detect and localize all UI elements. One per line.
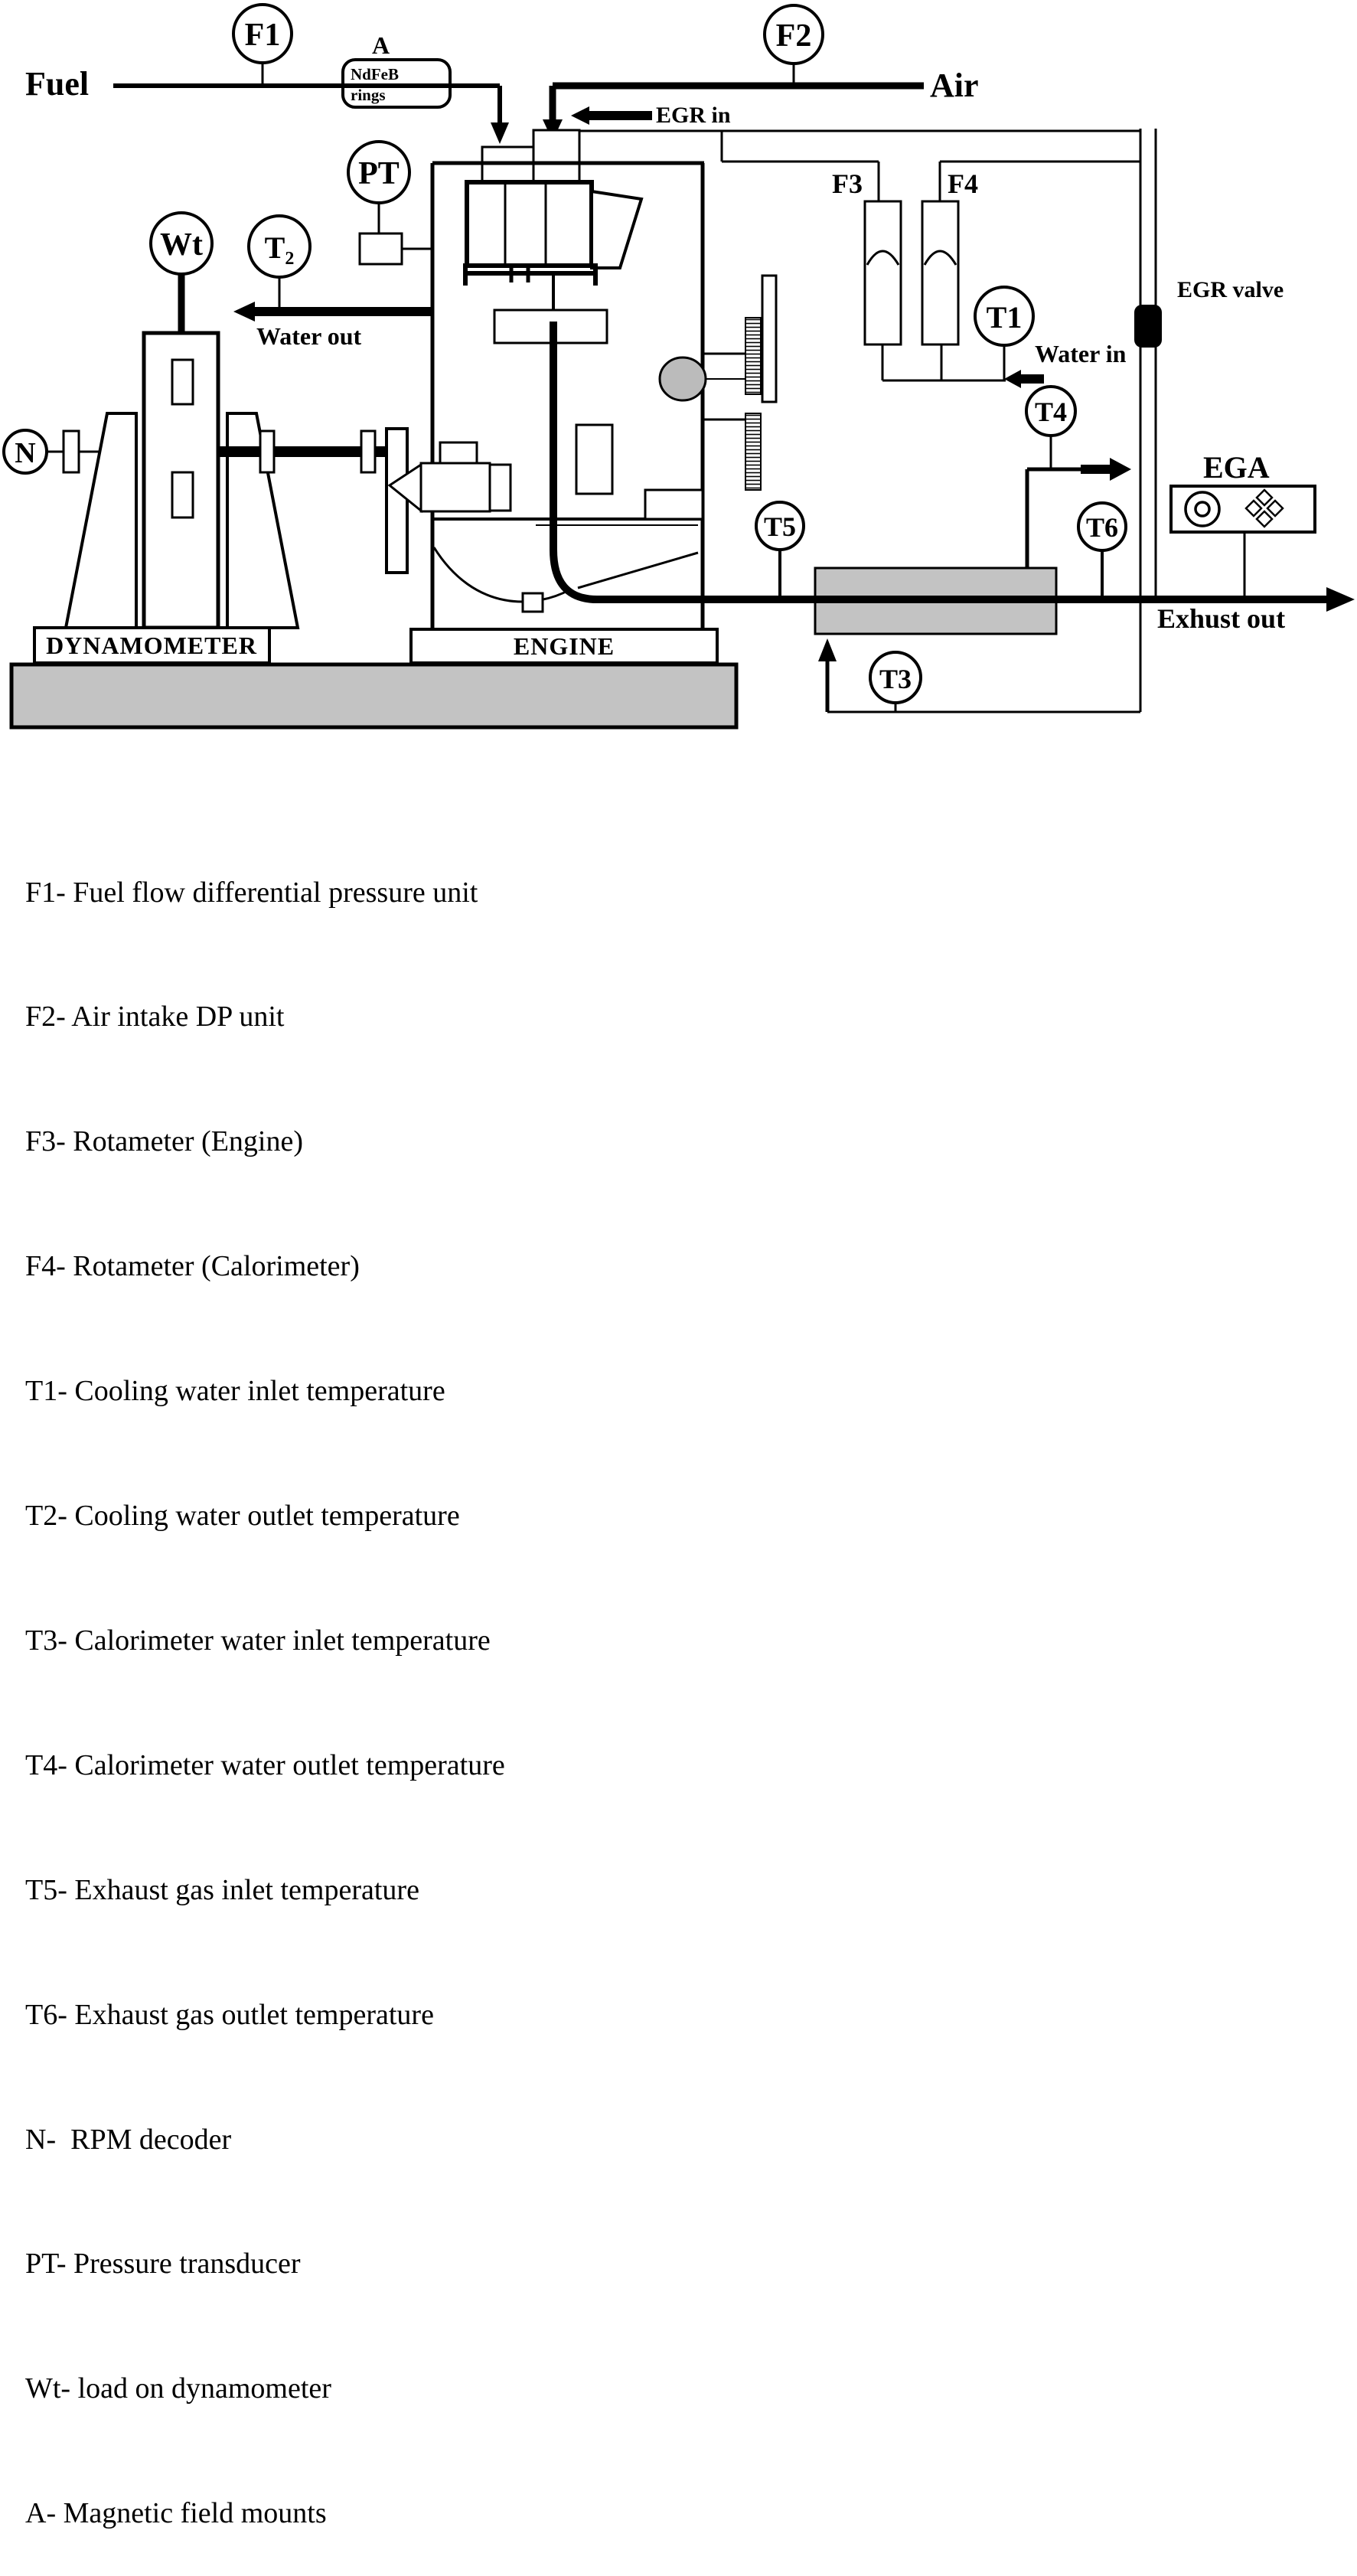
legend-item: F2- Air intake DP unit xyxy=(25,996,505,1037)
coupling-left xyxy=(260,431,274,472)
sensor-wt-label: Wt xyxy=(160,227,203,263)
calorimeter-in-arrow-icon xyxy=(818,638,837,661)
legend-item: F3- Rotameter (Engine) xyxy=(25,1121,505,1162)
intake-manifold xyxy=(467,182,641,268)
sensor-t6-label: T6 xyxy=(1086,512,1118,543)
egr-valve-label: EGR valve xyxy=(1177,277,1284,302)
a-mount-label: A xyxy=(372,31,390,59)
engine-port-circle xyxy=(660,358,706,400)
fuel-label: Fuel xyxy=(25,65,89,103)
sensor-t3-label: T3 xyxy=(879,664,912,694)
legend-item: T6- Exhaust gas outlet temperature xyxy=(25,1994,505,2036)
exhaust-arrow-icon xyxy=(1326,587,1355,612)
legend-item: T5- Exhaust gas inlet temperature xyxy=(25,1869,505,1911)
experimental-setup-figure: NdFeB rings A xyxy=(0,0,1357,1371)
rotameter-f3-tube xyxy=(865,201,901,344)
sensor-f1-label: F1 xyxy=(245,18,281,53)
ega-label: EGA xyxy=(1203,450,1270,485)
f4-label: F4 xyxy=(948,168,978,199)
sensor-t1-label: T1 xyxy=(987,300,1023,335)
legend-item: N- RPM decoder xyxy=(25,2119,505,2160)
schematic-diagram: NdFeB rings A xyxy=(0,0,1357,773)
foundation-slab xyxy=(11,664,736,727)
water-in-arrow-icon xyxy=(1004,370,1021,388)
water-out-arrow-icon xyxy=(233,302,255,322)
calorimeter-outlet-line xyxy=(1027,436,1131,568)
legend-item: T4- Calorimeter water outlet temperature xyxy=(25,1745,505,1786)
legend-item: T2- Cooling water outlet temperature xyxy=(25,1495,505,1536)
coupling-right xyxy=(361,431,375,472)
sensor-n-label: N xyxy=(15,437,35,469)
sensor-t5-label: T5 xyxy=(764,511,796,542)
pressure-transducer xyxy=(360,203,432,264)
egr-in-arrow-icon xyxy=(571,106,589,125)
ndfeb-label: NdFeB xyxy=(351,65,399,83)
dynamometer-label: DYNAMOMETER xyxy=(46,632,257,659)
legend-item: T3- Calorimeter water inlet temperature xyxy=(25,1620,505,1661)
legend-item: T1- Cooling water inlet temperature xyxy=(25,1370,505,1412)
legend-item: Wt- load on dynamometer xyxy=(25,2368,505,2409)
fuel-arrow-icon xyxy=(491,122,509,144)
air-line xyxy=(543,64,924,141)
sensor-t4-label: T4 xyxy=(1035,397,1067,427)
calorimeter-inlet-line xyxy=(818,638,1140,712)
water-in-line xyxy=(1004,370,1044,388)
legend-item: A- Magnetic field mounts xyxy=(25,2493,505,2534)
flywheel xyxy=(387,429,407,573)
exhaust-out-label: Exhust out xyxy=(1157,603,1285,634)
sensor-t2-label: T₂ xyxy=(265,230,295,265)
ndfeb-rings-box: NdFeB rings A xyxy=(343,31,450,107)
air-label: Air xyxy=(930,67,979,104)
legend-item: F1- Fuel flow differential pressure unit xyxy=(25,872,505,913)
rpm-sensor-box xyxy=(64,431,79,472)
sensor-f2-label: F2 xyxy=(776,18,812,54)
chain-lower xyxy=(745,413,761,490)
sensor-pt-label: PT xyxy=(358,156,400,191)
ega-analyzer xyxy=(1171,486,1315,596)
rings-label: rings xyxy=(351,86,386,104)
manifold-funnel xyxy=(592,191,641,268)
ega-box xyxy=(1171,486,1315,532)
water-out-label: Water out xyxy=(256,322,362,350)
egr-valve-body xyxy=(1134,305,1162,348)
legend-item: F4- Rotameter (Calorimeter) xyxy=(25,1246,505,1287)
water-out-line xyxy=(233,277,432,322)
engine-label: ENGINE xyxy=(514,632,615,660)
legend-item: PT- Pressure transducer xyxy=(25,2243,505,2284)
water-in-label: Water in xyxy=(1035,340,1127,367)
chain-upper xyxy=(745,318,761,394)
f3-label: F3 xyxy=(832,168,863,199)
egr-in-label: EGR in xyxy=(656,103,731,128)
rotameter-f4-tube xyxy=(922,201,958,344)
clutch-housing xyxy=(421,463,490,511)
chain-drive xyxy=(704,276,776,490)
legend: F1- Fuel flow differential pressure unit… xyxy=(25,788,505,2576)
engine-inlet-boxes xyxy=(482,130,579,181)
calorimeter-out-arrow-icon xyxy=(1110,458,1131,481)
